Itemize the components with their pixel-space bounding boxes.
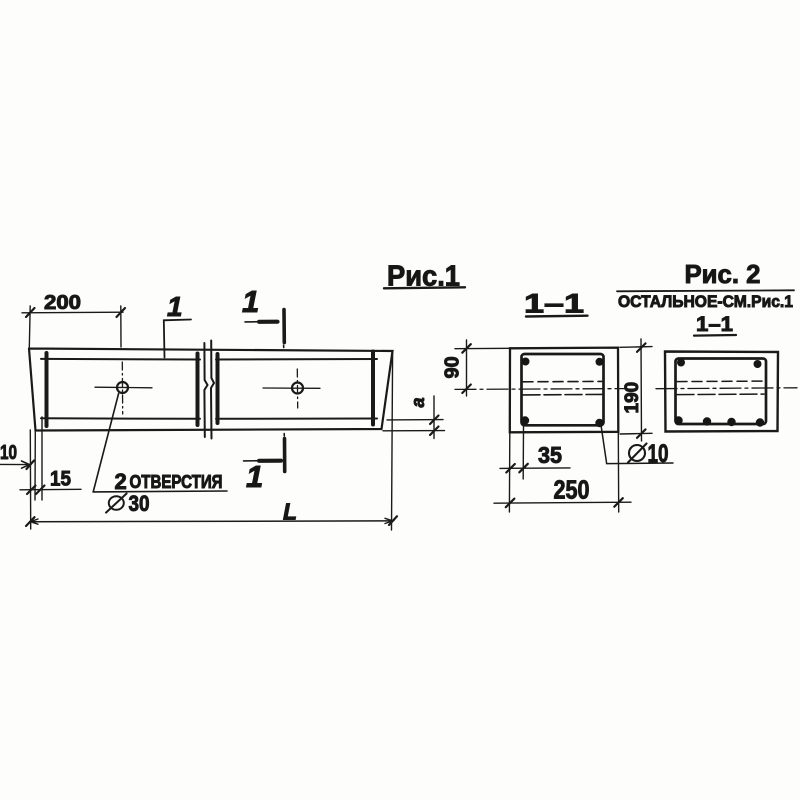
svg-text:a: a bbox=[408, 397, 428, 407]
svg-text:ОТВЕРСТИЯ: ОТВЕРСТИЯ bbox=[130, 472, 223, 492]
svg-text:15: 15 bbox=[50, 468, 71, 491]
svg-text:250: 250 bbox=[554, 474, 590, 504]
svg-text:1–1: 1–1 bbox=[524, 289, 584, 319]
svg-text:1: 1 bbox=[242, 284, 259, 319]
svg-text:90: 90 bbox=[442, 356, 464, 378]
svg-text:1: 1 bbox=[246, 459, 263, 494]
svg-text:190: 190 bbox=[622, 382, 643, 414]
svg-text:2: 2 bbox=[115, 469, 127, 494]
svg-text:30: 30 bbox=[129, 491, 150, 516]
svg-text:200: 200 bbox=[44, 292, 81, 314]
svg-text:1–1: 1–1 bbox=[696, 313, 733, 336]
svg-text:1: 1 bbox=[167, 291, 183, 322]
svg-text:10: 10 bbox=[0, 442, 17, 464]
svg-text:ОСТАЛЬНОЕ-СМ.Рис.1: ОСТАЛЬНОЕ-СМ.Рис.1 bbox=[618, 292, 793, 311]
svg-text:Рис. 2: Рис. 2 bbox=[685, 259, 761, 289]
svg-text:35: 35 bbox=[538, 442, 562, 468]
svg-text:10: 10 bbox=[648, 440, 669, 468]
